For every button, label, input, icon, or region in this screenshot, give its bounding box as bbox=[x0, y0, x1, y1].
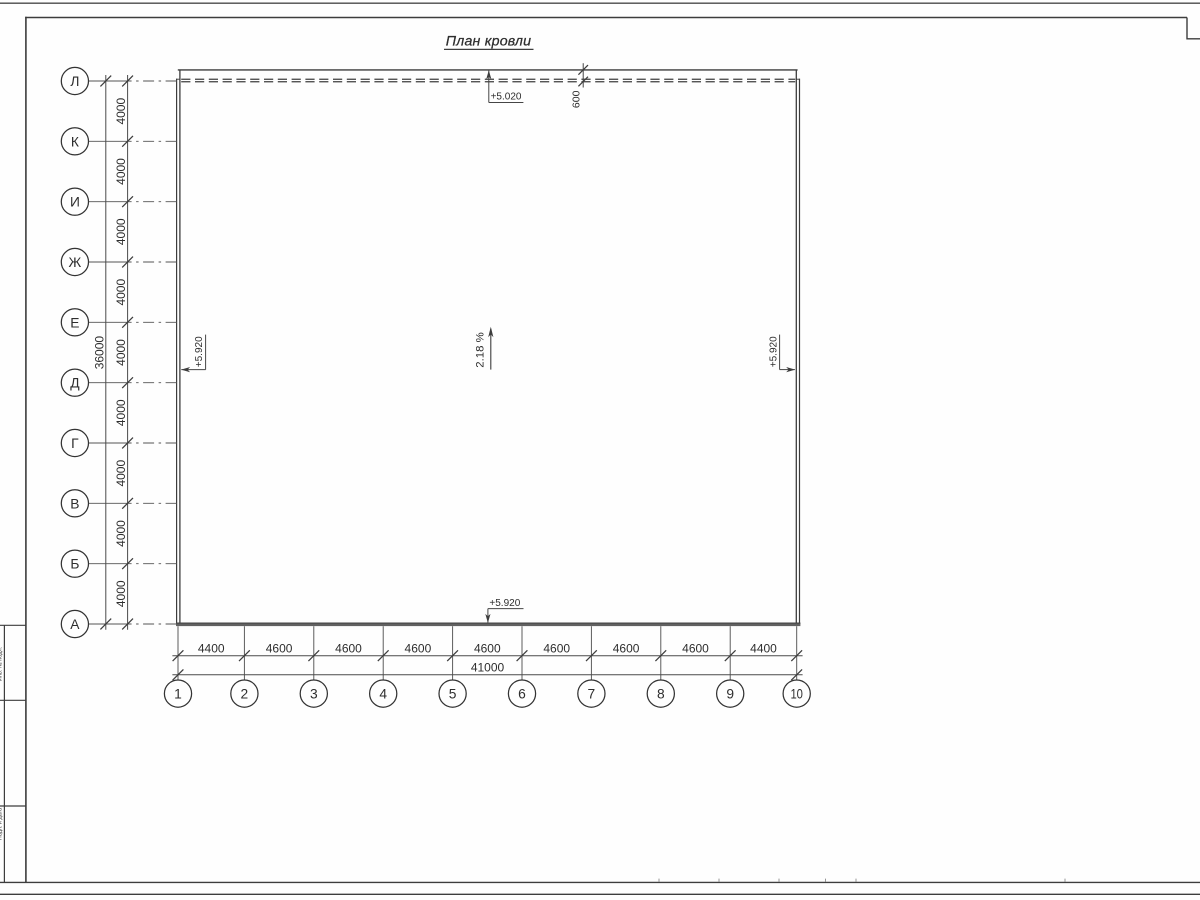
svg-text:4600: 4600 bbox=[266, 641, 293, 655]
svg-text:4600: 4600 bbox=[613, 641, 640, 655]
svg-text:4: 4 bbox=[379, 687, 387, 702]
svg-text:Б: Б bbox=[70, 557, 79, 572]
svg-text:План кровли: План кровли bbox=[446, 33, 531, 49]
svg-text:А: А bbox=[70, 617, 80, 632]
svg-text:4600: 4600 bbox=[543, 641, 570, 655]
svg-text:Д: Д bbox=[70, 376, 80, 391]
svg-text:2: 2 bbox=[241, 687, 249, 702]
svg-text:В: В bbox=[70, 496, 79, 511]
svg-text:4600: 4600 bbox=[474, 641, 501, 655]
svg-text:4000: 4000 bbox=[114, 218, 128, 245]
svg-text:4000: 4000 bbox=[114, 580, 128, 607]
svg-text:И: И bbox=[70, 195, 80, 210]
svg-text:4600: 4600 bbox=[405, 641, 432, 655]
svg-text:4600: 4600 bbox=[682, 641, 709, 655]
svg-text:4000: 4000 bbox=[114, 399, 128, 426]
svg-text:4000: 4000 bbox=[114, 98, 128, 125]
svg-text:4400: 4400 bbox=[198, 641, 225, 655]
svg-text:Ж: Ж bbox=[69, 255, 82, 270]
svg-text:9: 9 bbox=[726, 687, 734, 702]
svg-text:7: 7 bbox=[588, 687, 596, 702]
svg-text:Инв. № подл.: Инв. № подл. bbox=[0, 646, 4, 681]
svg-text:3: 3 bbox=[310, 687, 318, 702]
svg-text:Е: Е bbox=[70, 315, 79, 330]
svg-text:4600: 4600 bbox=[335, 641, 362, 655]
svg-text:4400: 4400 bbox=[750, 641, 777, 655]
svg-text:+5.920: +5.920 bbox=[768, 336, 779, 367]
svg-text:8: 8 bbox=[657, 687, 665, 702]
svg-text:+5.020: +5.020 bbox=[491, 92, 522, 103]
svg-text:4000: 4000 bbox=[114, 158, 128, 185]
svg-text:4000: 4000 bbox=[114, 460, 128, 487]
svg-text:41000: 41000 bbox=[471, 660, 505, 674]
svg-text:5: 5 bbox=[449, 687, 457, 702]
svg-text:К: К bbox=[71, 134, 79, 149]
svg-text:+5.920: +5.920 bbox=[489, 598, 520, 609]
svg-text:2.18 %: 2.18 % bbox=[475, 332, 487, 367]
svg-text:Подп. и дата: Подп. и дата bbox=[0, 807, 4, 840]
svg-text:6: 6 bbox=[518, 687, 526, 702]
svg-text:4000: 4000 bbox=[114, 520, 128, 547]
svg-text:+5.920: +5.920 bbox=[194, 336, 205, 367]
svg-text:10: 10 bbox=[790, 687, 803, 702]
svg-text:600: 600 bbox=[571, 90, 583, 108]
svg-text:4000: 4000 bbox=[114, 279, 128, 306]
svg-text:Л: Л bbox=[70, 74, 79, 89]
svg-text:36000: 36000 bbox=[93, 336, 107, 370]
svg-text:Г: Г bbox=[71, 436, 79, 451]
svg-text:1: 1 bbox=[174, 687, 182, 702]
svg-text:4000: 4000 bbox=[114, 339, 128, 366]
